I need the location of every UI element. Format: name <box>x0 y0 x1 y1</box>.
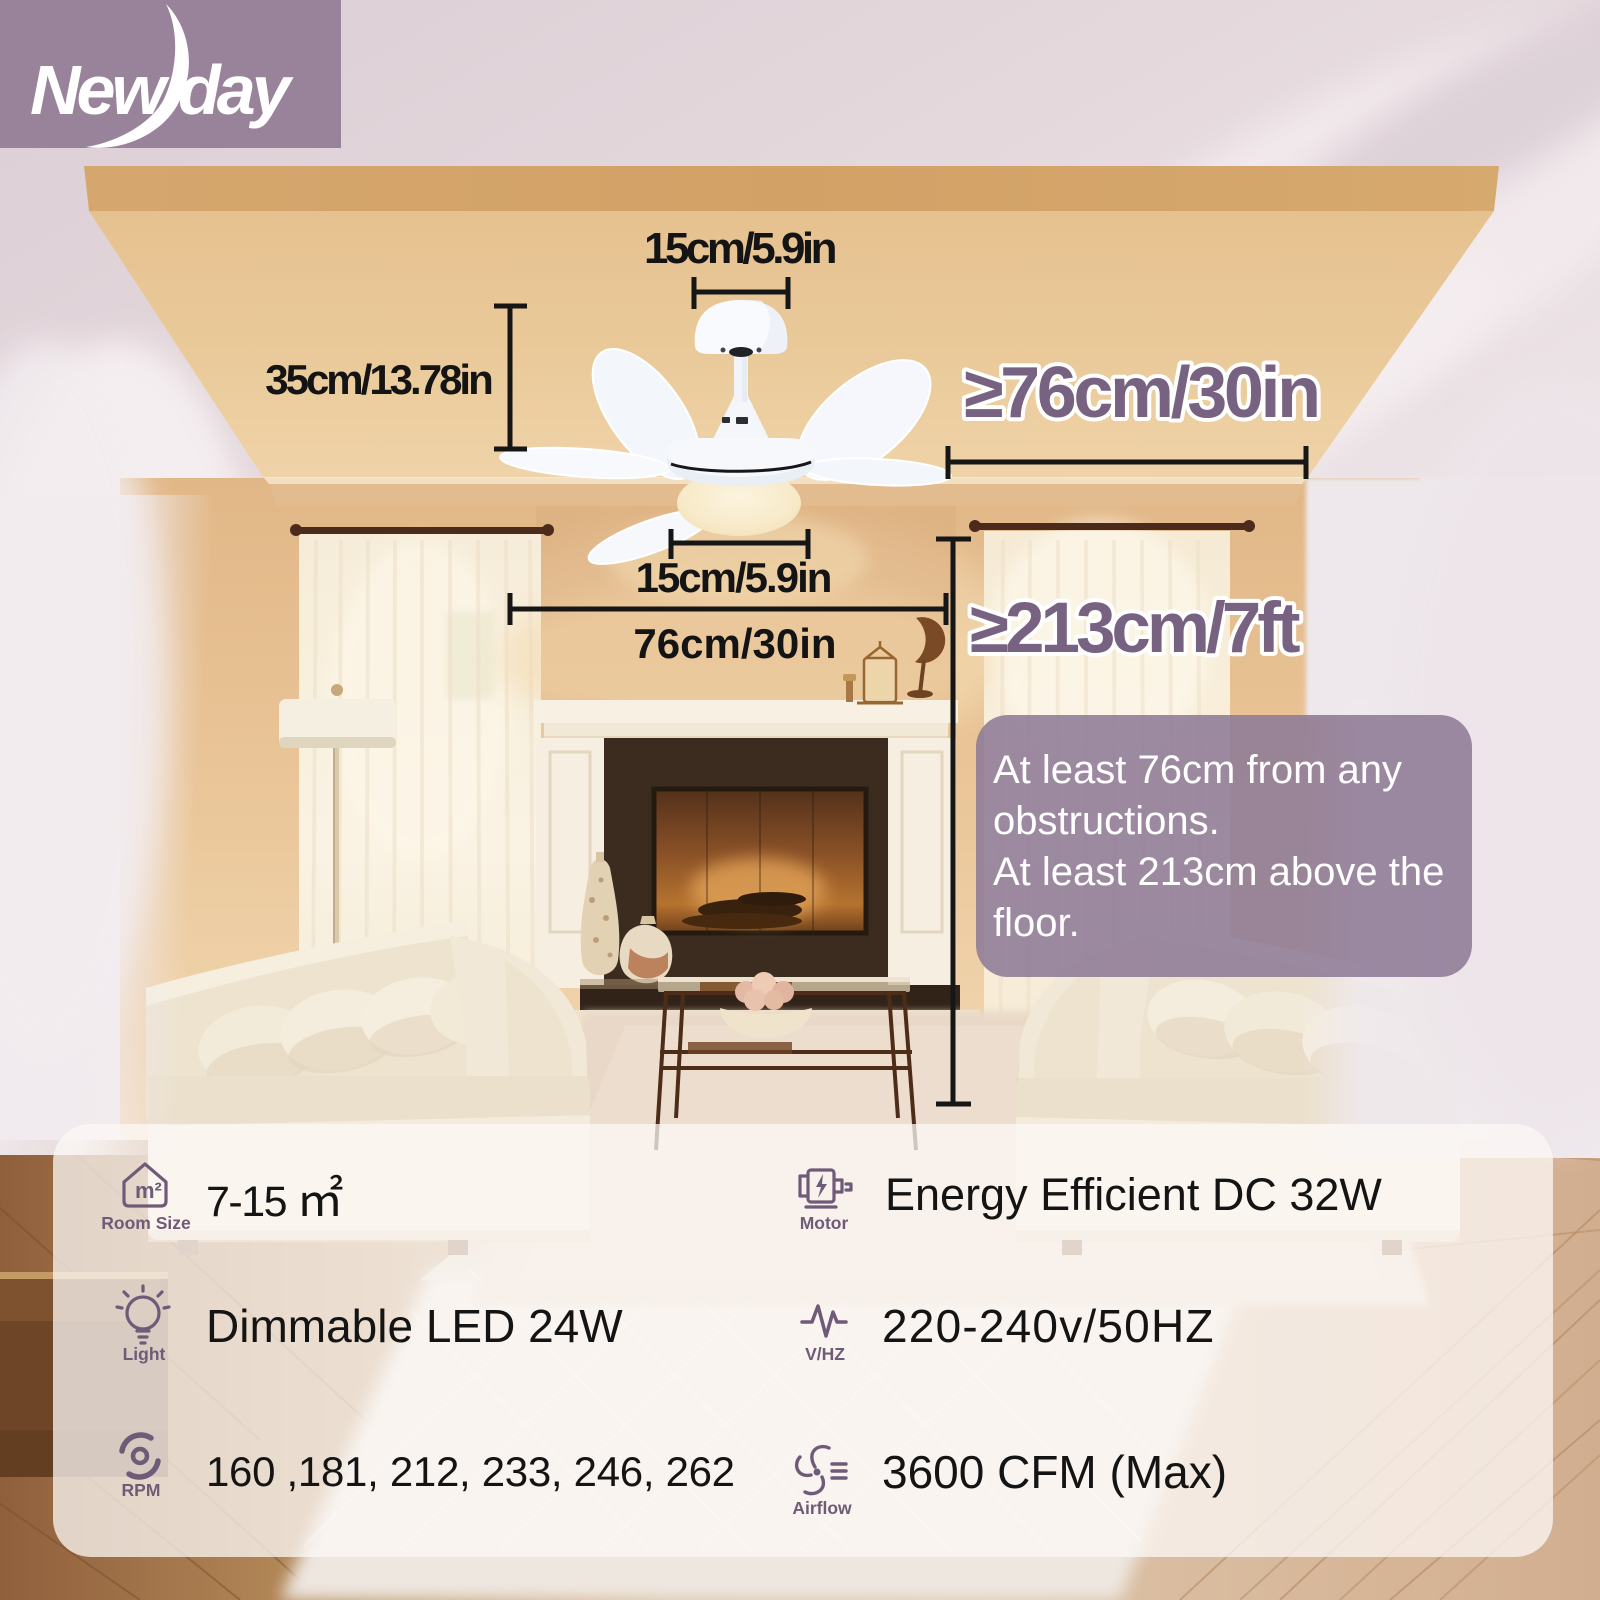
svg-text:220-240v/50HZ: 220-240v/50HZ <box>882 1300 1215 1352</box>
svg-text:obstructions.: obstructions. <box>993 799 1220 843</box>
svg-text:floor.: floor. <box>993 901 1080 945</box>
svg-text:15cm/5.9in: 15cm/5.9in <box>636 554 831 601</box>
svg-text:15cm/5.9in: 15cm/5.9in <box>644 224 836 273</box>
svg-text:7-15 ㎡: 7-15 ㎡ <box>206 1173 343 1226</box>
svg-text:At least 76cm from any: At least 76cm from any <box>993 748 1402 792</box>
svg-text:day: day <box>178 51 294 129</box>
svg-text:≥76cm/30in: ≥76cm/30in <box>964 353 1318 433</box>
svg-text:V/HZ: V/HZ <box>805 1344 845 1364</box>
svg-text:m²: m² <box>135 1178 162 1203</box>
svg-text:New: New <box>30 51 170 129</box>
svg-text:RPM: RPM <box>122 1480 161 1500</box>
svg-text:Airflow: Airflow <box>792 1498 852 1518</box>
svg-text:76cm/30in: 76cm/30in <box>633 620 836 667</box>
svg-text:Light: Light <box>123 1344 166 1364</box>
svg-text:Dimmable LED 24W: Dimmable LED 24W <box>206 1300 623 1352</box>
svg-text:Room Size: Room Size <box>101 1213 191 1233</box>
svg-text:≥213cm/7ft: ≥213cm/7ft <box>970 589 1300 668</box>
svg-text:35cm/13.78in: 35cm/13.78in <box>265 356 492 403</box>
svg-text:160 ,181, 212, 233, 246, 262: 160 ,181, 212, 233, 246, 262 <box>206 1448 735 1495</box>
svg-text:3600 CFM (Max): 3600 CFM (Max) <box>882 1446 1227 1498</box>
svg-text:At least 213cm above the: At least 213cm above the <box>993 850 1444 894</box>
svg-text:Energy Efficient DC 32W: Energy Efficient DC 32W <box>885 1169 1382 1220</box>
svg-text:Motor: Motor <box>800 1213 849 1233</box>
